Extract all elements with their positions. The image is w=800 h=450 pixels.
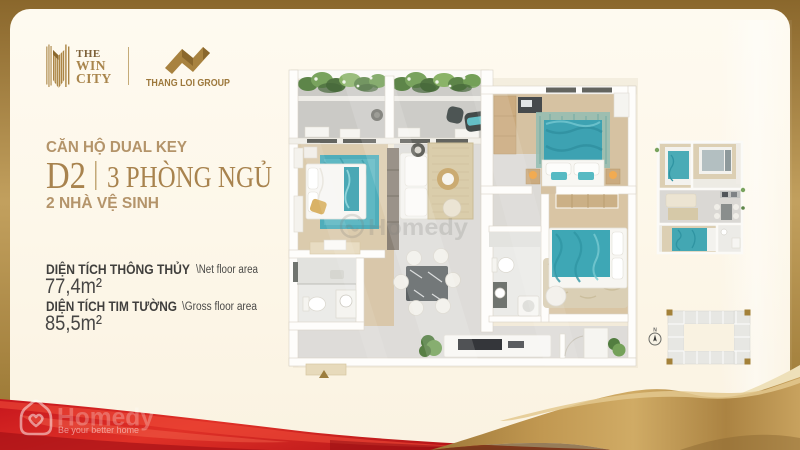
svg-text:3 PHÒNG NGỦ: 3 PHÒNG NGỦ bbox=[107, 159, 272, 194]
svg-text:CĂN HỘ DUAL KEY: CĂN HỘ DUAL KEY bbox=[46, 138, 188, 156]
svg-text:77,4m²: 77,4m² bbox=[45, 275, 102, 298]
svg-text:THANG LOI GROUP: THANG LOI GROUP bbox=[146, 78, 230, 89]
svg-text:N: N bbox=[653, 328, 657, 334]
svg-text:\Net floor area: \Net floor area bbox=[196, 264, 259, 276]
svg-text:Be your better home: Be your better home bbox=[58, 425, 139, 436]
svg-text:CITY: CITY bbox=[76, 71, 112, 86]
svg-text:Homedy: Homedy bbox=[368, 214, 468, 240]
svg-text:\Gross floor area: \Gross floor area bbox=[182, 301, 258, 313]
svg-text:85,5m²: 85,5m² bbox=[45, 312, 102, 335]
svg-text:2 NHÀ VỆ SINH: 2 NHÀ VỆ SINH bbox=[46, 194, 159, 212]
svg-text:D2: D2 bbox=[46, 155, 86, 197]
